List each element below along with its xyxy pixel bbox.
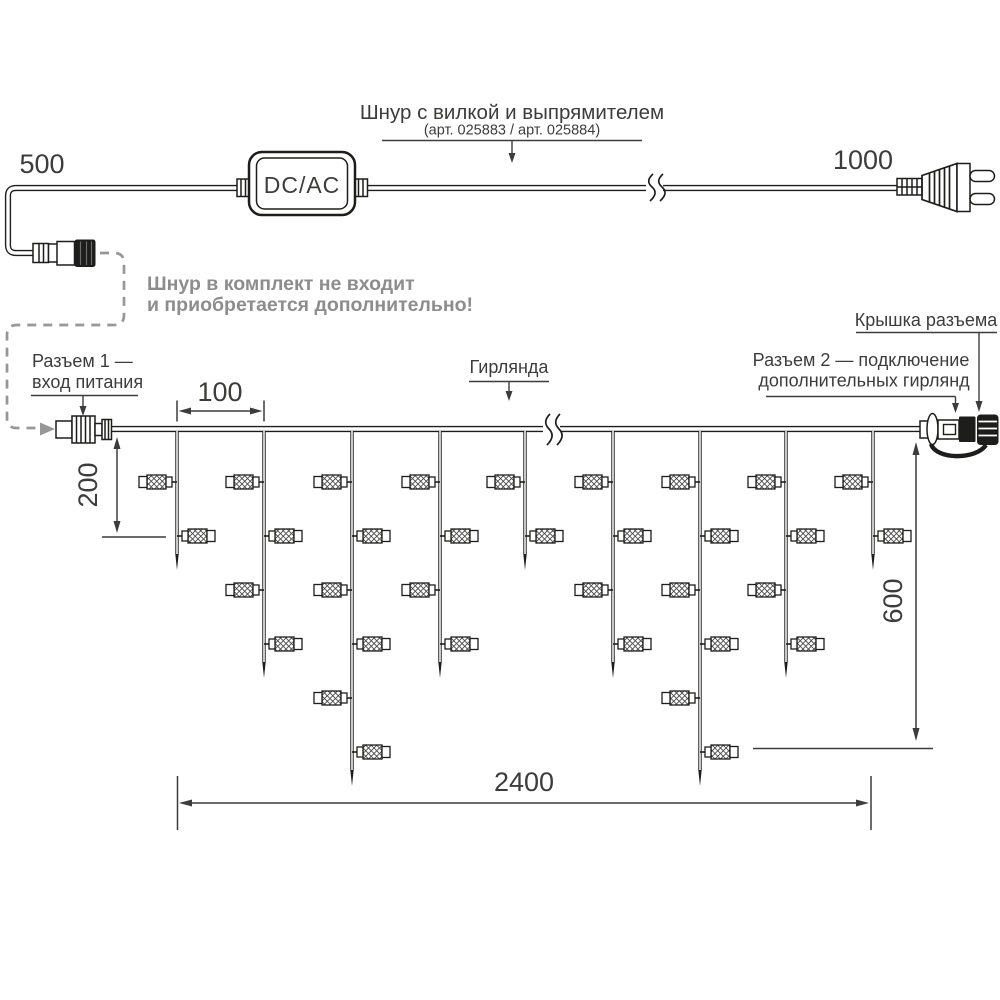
connector2-label-arrow-icon bbox=[952, 403, 959, 413]
lamp-body bbox=[363, 637, 382, 651]
lamp bbox=[662, 691, 700, 705]
connector1-label-leader bbox=[31, 396, 138, 408]
lamp-body bbox=[711, 637, 730, 651]
lamp-body bbox=[322, 583, 341, 597]
connector2-label-line1: Разъем 2 — подключение bbox=[753, 350, 970, 370]
note-line1: Шнур в комплект не входит bbox=[147, 273, 415, 295]
lamp-cap bbox=[643, 531, 651, 542]
connector1-label-line2: вход питания bbox=[32, 372, 143, 392]
lamp bbox=[352, 745, 390, 759]
garland-label: Гирлянда bbox=[470, 357, 550, 377]
lamp-body bbox=[843, 475, 862, 489]
lamp bbox=[575, 583, 613, 597]
lamp-body bbox=[275, 637, 294, 651]
plug-pin-top bbox=[970, 171, 995, 182]
lamp-body bbox=[363, 529, 382, 543]
lamp bbox=[226, 583, 264, 597]
dim-2400-label: 2400 bbox=[494, 767, 554, 797]
dim-1000-label: 1000 bbox=[833, 145, 893, 175]
lamp-cap bbox=[470, 531, 478, 542]
lamp-cap bbox=[470, 639, 478, 650]
cord-end-black-cap bbox=[75, 240, 96, 268]
lamp-cap bbox=[382, 531, 390, 542]
cap-label: Крышка разъема bbox=[855, 310, 998, 330]
garland-strand bbox=[487, 431, 563, 570]
cap-tether-cable bbox=[931, 444, 986, 456]
lamp-body bbox=[234, 583, 253, 597]
garland-label-arrow-icon bbox=[506, 391, 513, 401]
lamp bbox=[139, 475, 177, 489]
lamp bbox=[264, 529, 302, 543]
garland-strand bbox=[575, 431, 651, 678]
garland-strand bbox=[139, 431, 215, 570]
dcac-right-nipple bbox=[355, 179, 368, 197]
lamp-cap bbox=[402, 477, 410, 488]
lamp-body bbox=[711, 745, 730, 759]
garland-strand bbox=[662, 431, 738, 786]
lamp-body bbox=[756, 583, 775, 597]
dim-200-label: 200 bbox=[73, 462, 103, 507]
strand-tip bbox=[523, 554, 526, 570]
lamp-body bbox=[884, 529, 903, 543]
garland-strand bbox=[835, 431, 911, 570]
cord-end-connector bbox=[33, 240, 96, 268]
garland-break-icon bbox=[546, 414, 562, 445]
dcac-label: DC/AC bbox=[264, 172, 341, 198]
strand-tip bbox=[350, 770, 353, 786]
garland-strand bbox=[314, 431, 390, 786]
lamp bbox=[440, 529, 478, 543]
lamp-body bbox=[410, 583, 429, 597]
strand-tip bbox=[262, 662, 265, 678]
lamp-body bbox=[670, 583, 689, 597]
lamp-body bbox=[670, 475, 689, 489]
strand-tip bbox=[698, 770, 701, 786]
lamp-body bbox=[410, 475, 429, 489]
lamp bbox=[575, 475, 613, 489]
lamp-cap bbox=[816, 639, 824, 650]
strand-tip bbox=[175, 554, 178, 570]
lamp-cap bbox=[643, 639, 651, 650]
lamp-body bbox=[797, 637, 816, 651]
lamp bbox=[662, 583, 700, 597]
lamp bbox=[835, 475, 873, 489]
diagram-page: DC/AC Шнур с вилкой и выпрямителем (арт.… bbox=[0, 0, 1000, 1000]
lamp bbox=[700, 745, 738, 759]
lamp-cap bbox=[139, 477, 147, 488]
connector1-label-arrow-icon bbox=[80, 406, 87, 416]
lamp bbox=[786, 637, 824, 651]
lamp-cap bbox=[487, 477, 495, 488]
garland-label-leader bbox=[469, 382, 549, 393]
lamp-cap bbox=[314, 585, 322, 596]
lamp-cap bbox=[294, 639, 302, 650]
lamp bbox=[352, 637, 390, 651]
dashed-connection-path bbox=[7, 253, 124, 428]
strand-tip bbox=[611, 662, 614, 678]
lamp bbox=[873, 529, 911, 543]
garland-diagram: DC/AC Шнур с вилкой и выпрямителем (арт.… bbox=[0, 0, 1000, 1000]
lamp bbox=[352, 529, 390, 543]
lamp-body bbox=[234, 475, 253, 489]
lamp-cap bbox=[730, 531, 738, 542]
lamp-body bbox=[711, 529, 730, 543]
cord-label-leader bbox=[382, 141, 642, 155]
lamp-body bbox=[797, 529, 816, 543]
lamp-body bbox=[322, 475, 341, 489]
lamp-cap bbox=[662, 477, 670, 488]
plug-pin-bottom bbox=[970, 194, 995, 205]
lamp-cap bbox=[835, 477, 843, 488]
dim-100-label: 100 bbox=[197, 377, 242, 407]
lamp-cap bbox=[575, 585, 583, 596]
strand-tip bbox=[871, 554, 874, 570]
lamp-cap bbox=[314, 693, 322, 704]
lamp bbox=[613, 529, 651, 543]
lamp-cap bbox=[662, 693, 670, 704]
lamp bbox=[748, 583, 786, 597]
dim-2400: 2400 bbox=[178, 767, 872, 830]
lamp-cap bbox=[748, 477, 756, 488]
lamp-body bbox=[624, 529, 643, 543]
lamp-cap bbox=[816, 531, 824, 542]
lamp bbox=[700, 529, 738, 543]
lamp bbox=[314, 691, 352, 705]
lamp bbox=[177, 529, 215, 543]
lamp-body bbox=[451, 637, 470, 651]
lamp-body bbox=[583, 475, 602, 489]
lamp bbox=[314, 475, 352, 489]
connector-cap bbox=[977, 415, 999, 446]
lamp-body bbox=[583, 583, 602, 597]
lamp-cap bbox=[226, 585, 234, 596]
dim-100: 100 bbox=[177, 377, 264, 422]
dim-500-label: 500 bbox=[19, 149, 64, 179]
connector2-flange bbox=[927, 414, 938, 445]
connector2-body bbox=[959, 417, 976, 443]
connector2-label-line2: дополнительных гирлянд bbox=[758, 371, 970, 391]
garland-strand bbox=[402, 431, 478, 678]
lamp-cap bbox=[662, 585, 670, 596]
strand-tip bbox=[438, 662, 441, 678]
lamp-cap bbox=[294, 531, 302, 542]
lamp-cap bbox=[402, 585, 410, 596]
connector2-label-leader bbox=[766, 397, 956, 405]
lamp-body bbox=[188, 529, 207, 543]
lamp bbox=[402, 583, 440, 597]
dcac-converter-box: DC/AC bbox=[237, 152, 368, 215]
lamp bbox=[525, 529, 563, 543]
lamp-body bbox=[495, 475, 514, 489]
lamp bbox=[440, 637, 478, 651]
strand-tip bbox=[784, 662, 787, 678]
lamp-body bbox=[670, 691, 689, 705]
note-line2: и приобретается дополнительно! bbox=[147, 294, 473, 316]
lamp bbox=[314, 583, 352, 597]
lamp-body bbox=[147, 475, 166, 489]
connector2 bbox=[920, 414, 999, 457]
dim-600-label: 600 bbox=[878, 578, 908, 623]
lamp-cap bbox=[555, 531, 563, 542]
lamp bbox=[748, 475, 786, 489]
connector1-label-line1: Разъем 1 — bbox=[32, 351, 133, 371]
lamp bbox=[487, 475, 525, 489]
lamp-cap bbox=[575, 477, 583, 488]
lamp bbox=[786, 529, 824, 543]
lamp-cap bbox=[730, 747, 738, 758]
garland-strands bbox=[139, 431, 911, 786]
lamp bbox=[662, 475, 700, 489]
lamp-body bbox=[536, 529, 555, 543]
cap-label-arrow-icon bbox=[976, 401, 983, 412]
lamp-body bbox=[756, 475, 775, 489]
lamp bbox=[613, 637, 651, 651]
lamp-cap bbox=[382, 747, 390, 758]
lamp-body bbox=[275, 529, 294, 543]
lamp bbox=[700, 637, 738, 651]
plug-face bbox=[957, 164, 970, 212]
garland-section: Гирлянда Разъем 1 — вход питания Разъем … bbox=[31, 310, 999, 830]
lamp-cap bbox=[730, 639, 738, 650]
cable-break-icon bbox=[649, 174, 665, 201]
lamp-body bbox=[363, 745, 382, 759]
lamp-body bbox=[322, 691, 341, 705]
lamp-cap bbox=[903, 531, 911, 542]
lamp bbox=[264, 637, 302, 651]
lamp-cap bbox=[207, 531, 215, 542]
lamp-cap bbox=[226, 477, 234, 488]
cord-label: Шнур с вилкой и выпрямителем bbox=[360, 101, 664, 124]
mains-plug bbox=[897, 164, 995, 212]
garland-strand bbox=[748, 431, 824, 678]
connector1 bbox=[56, 416, 112, 443]
lamp-body bbox=[451, 529, 470, 543]
garland-strand bbox=[226, 431, 302, 678]
cord-article-label: (арт. 025883 / арт. 025884) bbox=[424, 123, 600, 139]
lamp bbox=[402, 475, 440, 489]
lamp bbox=[226, 475, 264, 489]
dashed-arrow-icon bbox=[40, 423, 55, 436]
lamp-body bbox=[624, 637, 643, 651]
cord-label-arrow-icon bbox=[509, 153, 516, 163]
lamp-cap bbox=[314, 477, 322, 488]
lamp-cap bbox=[748, 585, 756, 596]
lamp-cap bbox=[382, 639, 390, 650]
